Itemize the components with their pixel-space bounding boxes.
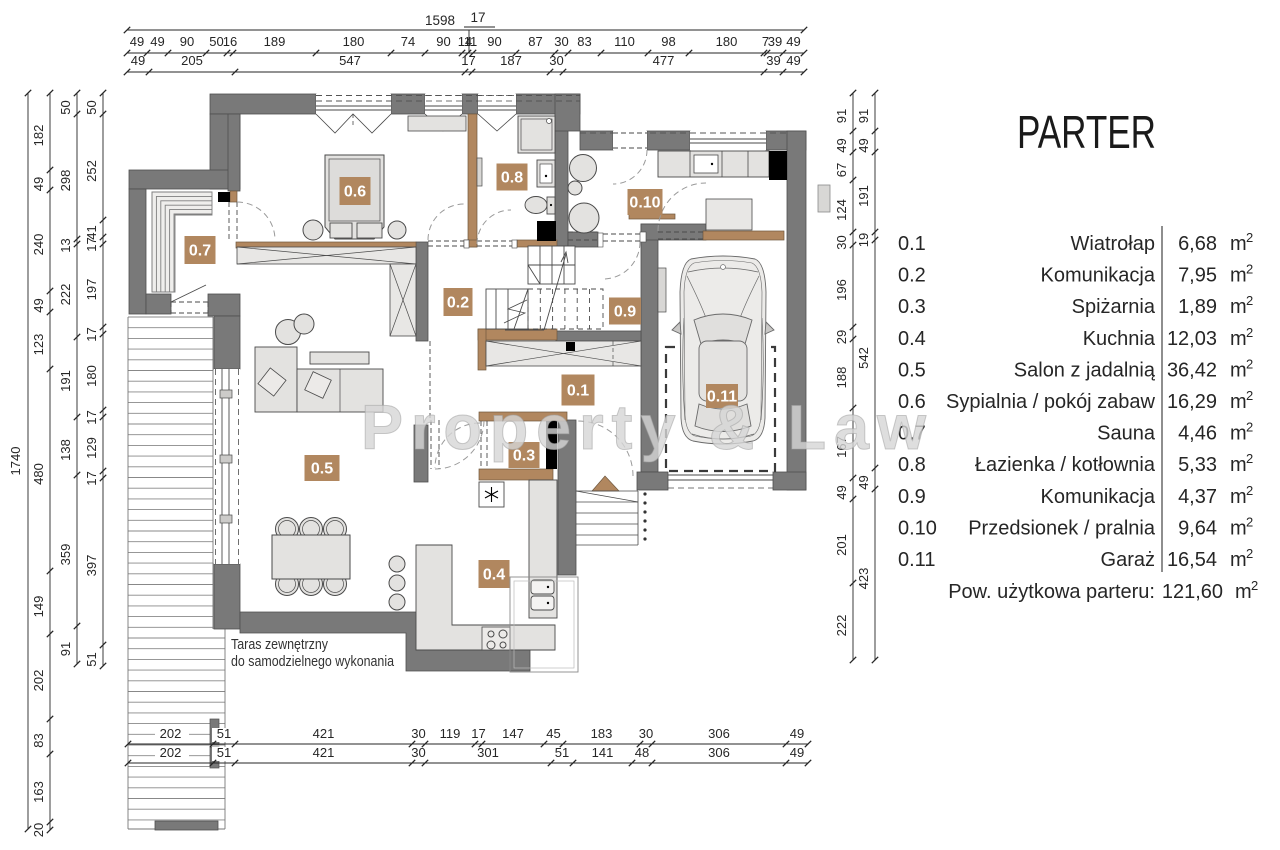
svg-text:17: 17 — [84, 410, 99, 424]
svg-text:49: 49 — [31, 298, 46, 312]
svg-text:m: m — [1230, 423, 1247, 445]
svg-text:13: 13 — [58, 238, 73, 252]
svg-text:0.11: 0.11 — [898, 549, 935, 571]
svg-text:11: 11 — [464, 34, 478, 49]
svg-text:30: 30 — [834, 235, 849, 249]
svg-text:202: 202 — [160, 745, 182, 760]
svg-text:45: 45 — [546, 726, 560, 741]
svg-text:17: 17 — [84, 471, 99, 485]
svg-text:477: 477 — [653, 53, 675, 68]
svg-text:542: 542 — [856, 347, 871, 369]
svg-text:240: 240 — [31, 234, 46, 256]
svg-text:50: 50 — [209, 34, 223, 49]
svg-text:51: 51 — [217, 726, 231, 741]
svg-text:91: 91 — [58, 642, 73, 656]
svg-text:0.10: 0.10 — [629, 195, 660, 212]
svg-text:0.5: 0.5 — [311, 461, 333, 478]
svg-text:49: 49 — [834, 138, 849, 152]
svg-text:180: 180 — [716, 34, 738, 49]
svg-text:205: 205 — [181, 53, 203, 68]
svg-text:51: 51 — [217, 745, 231, 760]
svg-text:12,03: 12,03 — [1167, 328, 1217, 350]
svg-text:2: 2 — [1246, 388, 1253, 403]
svg-text:Garaż: Garaż — [1101, 549, 1155, 571]
svg-text:306: 306 — [708, 726, 730, 741]
svg-text:480: 480 — [31, 463, 46, 485]
svg-text:do samodzielnego wykonania: do samodzielnego wykonania — [231, 653, 395, 670]
svg-text:Łazienka / kotłownia: Łazienka / kotłownia — [975, 454, 1156, 476]
svg-text:Sypialnia / pokój zabaw: Sypialnia / pokój zabaw — [946, 391, 1156, 413]
svg-text:1,89: 1,89 — [1178, 296, 1217, 318]
svg-text:Sauna: Sauna — [1097, 423, 1156, 445]
svg-text:20: 20 — [31, 823, 46, 837]
svg-text:17: 17 — [84, 237, 99, 251]
svg-text:252: 252 — [84, 160, 99, 182]
svg-text:39: 39 — [766, 53, 780, 68]
svg-text:17: 17 — [470, 10, 485, 25]
svg-text:m: m — [1230, 486, 1247, 508]
svg-text:16: 16 — [223, 34, 237, 49]
svg-text:359: 359 — [58, 544, 73, 566]
svg-text:50: 50 — [84, 100, 99, 114]
svg-text:1598: 1598 — [425, 13, 455, 28]
svg-text:90: 90 — [180, 34, 194, 49]
svg-text:2: 2 — [1246, 483, 1253, 498]
svg-text:91: 91 — [856, 109, 871, 123]
svg-text:0.2: 0.2 — [447, 295, 469, 312]
svg-text:306: 306 — [708, 745, 730, 760]
svg-text:Komunikacja: Komunikacja — [1040, 265, 1155, 287]
svg-text:m: m — [1230, 549, 1247, 571]
svg-text:49: 49 — [790, 745, 804, 760]
svg-text:149: 149 — [31, 596, 46, 618]
svg-text:147: 147 — [502, 726, 524, 741]
svg-text:16,54: 16,54 — [1167, 549, 1217, 571]
svg-text:222: 222 — [58, 284, 73, 306]
svg-text:189: 189 — [264, 34, 286, 49]
svg-text:m: m — [1230, 233, 1247, 255]
svg-text:298: 298 — [58, 170, 73, 192]
svg-text:0.5: 0.5 — [898, 359, 926, 381]
svg-text:49: 49 — [790, 726, 804, 741]
svg-text:2: 2 — [1246, 451, 1253, 466]
svg-text:6,68: 6,68 — [1178, 233, 1217, 255]
svg-text:98: 98 — [661, 34, 675, 49]
svg-text:87: 87 — [528, 34, 542, 49]
svg-text:2: 2 — [1246, 514, 1253, 529]
svg-text:5,33: 5,33 — [1178, 454, 1217, 476]
svg-text:30: 30 — [554, 34, 568, 49]
svg-text:17: 17 — [461, 53, 475, 68]
svg-text:163: 163 — [31, 781, 46, 803]
svg-text:16,29: 16,29 — [1167, 391, 1217, 413]
svg-text:0.7: 0.7 — [189, 243, 211, 260]
svg-text:Salon z jadalnią: Salon z jadalnią — [1014, 359, 1156, 381]
svg-text:0.2: 0.2 — [898, 265, 926, 287]
svg-text:49: 49 — [786, 34, 800, 49]
svg-text:2: 2 — [1246, 356, 1253, 371]
svg-text:83: 83 — [31, 733, 46, 747]
svg-text:30: 30 — [411, 745, 425, 760]
svg-text:9,64: 9,64 — [1178, 517, 1217, 539]
svg-text:49: 49 — [130, 34, 144, 49]
svg-text:36,42: 36,42 — [1167, 359, 1217, 381]
svg-text:m: m — [1230, 517, 1247, 539]
svg-text:4,37: 4,37 — [1178, 486, 1217, 508]
svg-text:202: 202 — [160, 726, 182, 741]
svg-text:m: m — [1230, 391, 1247, 413]
svg-text:421: 421 — [313, 745, 335, 760]
svg-text:91: 91 — [834, 109, 849, 123]
svg-text:Spiżarnia: Spiżarnia — [1072, 296, 1156, 318]
svg-text:7,95: 7,95 — [1178, 265, 1217, 287]
svg-text:196: 196 — [834, 279, 849, 301]
svg-text:1740: 1740 — [8, 447, 23, 476]
svg-text:49: 49 — [856, 138, 871, 152]
svg-text:29: 29 — [834, 330, 849, 344]
svg-text:2: 2 — [1246, 262, 1253, 277]
svg-text:0.10: 0.10 — [898, 517, 937, 539]
svg-text:2: 2 — [1246, 230, 1253, 245]
svg-text:138: 138 — [58, 439, 73, 461]
svg-text:121,60: 121,60 — [1162, 581, 1223, 603]
svg-text:547: 547 — [339, 53, 361, 68]
svg-text:197: 197 — [84, 279, 99, 301]
svg-text:49: 49 — [31, 177, 46, 191]
svg-text:49: 49 — [856, 475, 871, 489]
svg-text:423: 423 — [856, 568, 871, 590]
svg-text:51: 51 — [84, 652, 99, 666]
svg-text:Przedsionek / pralnia: Przedsionek / pralnia — [968, 517, 1156, 539]
svg-text:m: m — [1230, 296, 1247, 318]
svg-text:0.9: 0.9 — [898, 486, 926, 508]
svg-text:187: 187 — [500, 53, 522, 68]
svg-text:2: 2 — [1251, 578, 1258, 593]
svg-text:m: m — [1235, 581, 1252, 603]
svg-text:49: 49 — [131, 53, 145, 68]
svg-text:182: 182 — [31, 125, 46, 147]
svg-text:0.4: 0.4 — [898, 328, 926, 350]
svg-text:49: 49 — [150, 34, 164, 49]
svg-text:188: 188 — [834, 367, 849, 389]
svg-text:141: 141 — [592, 745, 614, 760]
svg-text:67: 67 — [834, 163, 849, 177]
svg-text:83: 83 — [577, 34, 591, 49]
svg-text:123: 123 — [31, 334, 46, 356]
svg-text:30: 30 — [639, 726, 653, 741]
svg-text:Wiatrołap: Wiatrołap — [1071, 233, 1155, 255]
svg-text:Kuchnia: Kuchnia — [1083, 328, 1156, 350]
svg-text:17: 17 — [471, 726, 485, 741]
svg-text:110: 110 — [614, 34, 635, 49]
svg-text:0.8: 0.8 — [501, 170, 523, 187]
svg-text:19: 19 — [856, 233, 871, 247]
svg-text:2: 2 — [1246, 546, 1253, 561]
svg-text:48: 48 — [635, 745, 649, 760]
svg-text:0.1: 0.1 — [898, 233, 926, 255]
svg-text:0.6: 0.6 — [344, 184, 366, 201]
svg-text:4,46: 4,46 — [1178, 423, 1217, 445]
svg-text:129: 129 — [84, 437, 99, 459]
svg-text:202: 202 — [31, 670, 46, 692]
svg-text:2: 2 — [1246, 293, 1253, 308]
svg-text:90: 90 — [487, 34, 501, 49]
svg-text:397: 397 — [84, 555, 99, 577]
svg-text:191: 191 — [58, 370, 73, 392]
svg-text:0.9: 0.9 — [614, 304, 636, 321]
svg-text:222: 222 — [834, 615, 849, 637]
svg-text:49: 49 — [834, 485, 849, 499]
svg-text:180: 180 — [343, 34, 365, 49]
svg-text:0.4: 0.4 — [483, 567, 505, 584]
svg-text:m: m — [1230, 359, 1247, 381]
svg-text:Property & Law: Property & Law — [361, 393, 927, 463]
svg-text:m: m — [1230, 265, 1247, 287]
svg-text:90: 90 — [436, 34, 450, 49]
svg-text:m: m — [1230, 328, 1247, 350]
svg-text:30: 30 — [411, 726, 425, 741]
svg-text:2: 2 — [1246, 325, 1253, 340]
svg-text:Taras zewnętrzny: Taras zewnętrzny — [231, 636, 328, 653]
svg-text:0.3: 0.3 — [898, 296, 926, 318]
svg-text:191: 191 — [856, 185, 871, 207]
svg-text:124: 124 — [834, 199, 849, 221]
svg-text:74: 74 — [401, 34, 415, 49]
svg-text:183: 183 — [591, 726, 613, 741]
svg-text:119: 119 — [440, 726, 461, 741]
svg-text:301: 301 — [477, 745, 499, 760]
svg-text:39: 39 — [768, 34, 782, 49]
svg-text:Komunikacja: Komunikacja — [1040, 486, 1155, 508]
svg-text:421: 421 — [313, 726, 335, 741]
svg-text:m: m — [1230, 454, 1247, 476]
svg-text:30: 30 — [549, 53, 563, 68]
svg-text:180: 180 — [84, 365, 99, 387]
svg-text:49: 49 — [786, 53, 800, 68]
svg-text:PARTER: PARTER — [1017, 106, 1156, 158]
svg-text:51: 51 — [555, 745, 569, 760]
svg-text:50: 50 — [58, 100, 73, 114]
svg-text:2: 2 — [1246, 420, 1253, 435]
svg-text:201: 201 — [834, 534, 849, 556]
svg-text:17: 17 — [84, 327, 99, 341]
svg-text:Pow. użytkowa parteru:: Pow. użytkowa parteru: — [948, 581, 1155, 603]
